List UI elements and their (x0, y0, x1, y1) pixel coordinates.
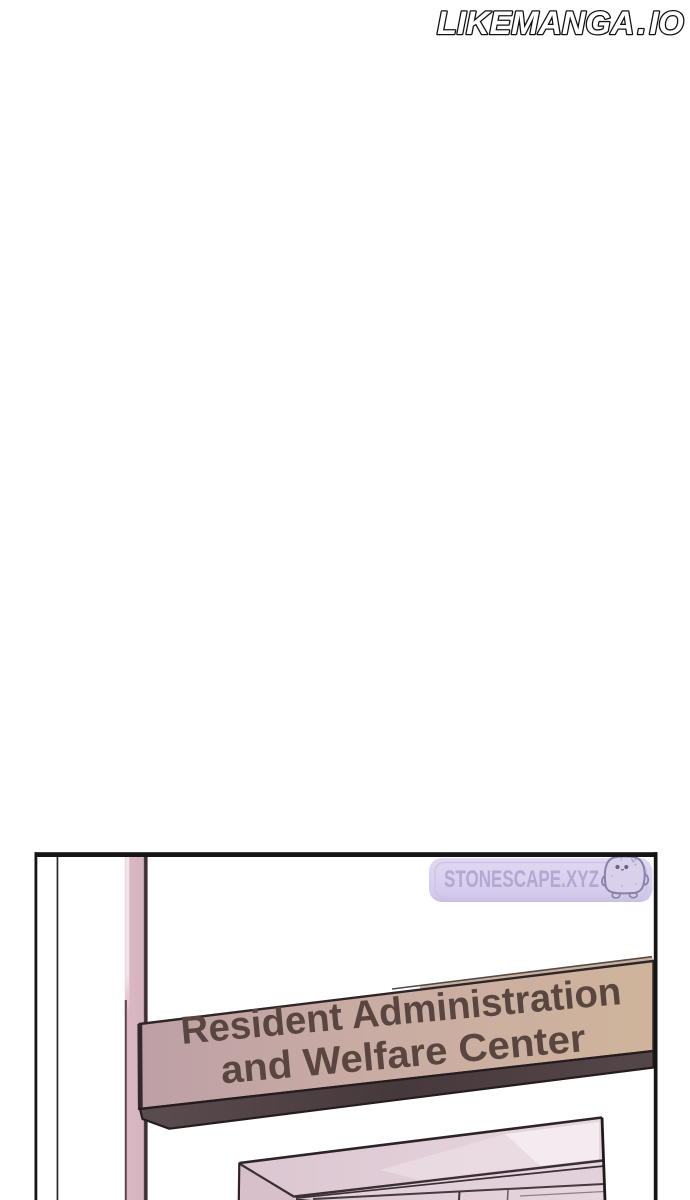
svg-text:LIKEMANGA.IO: LIKEMANGA.IO (437, 4, 684, 41)
svg-text:STONESCAPE.XYZ: STONESCAPE.XYZ (444, 866, 599, 893)
